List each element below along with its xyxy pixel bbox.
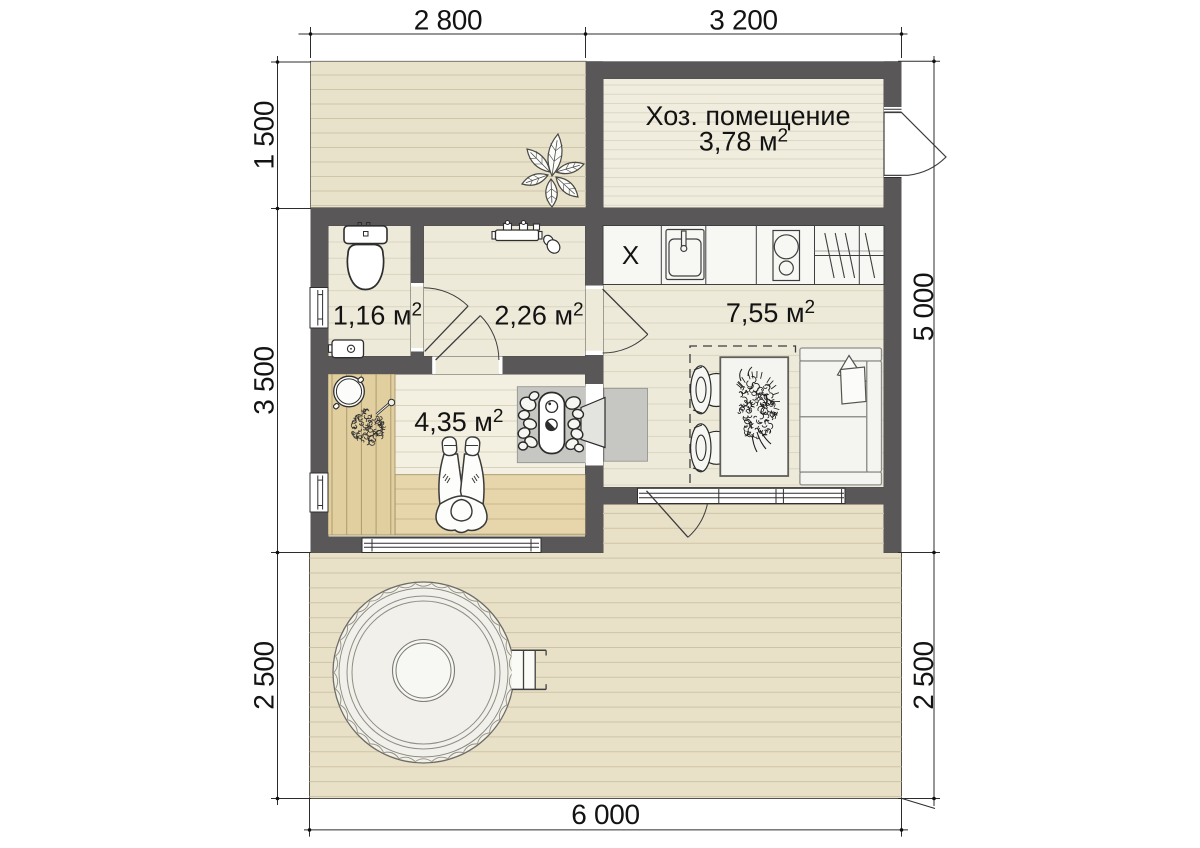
svg-text:5 000: 5 000	[908, 273, 939, 342]
svg-text:7,55 м2: 7,55 м2	[726, 297, 815, 328]
svg-text:1,16 м2: 1,16 м2	[333, 300, 422, 331]
svg-text:1 500: 1 500	[249, 101, 280, 170]
svg-text:4,35 м2: 4,35 м2	[414, 406, 503, 437]
svg-text:3 500: 3 500	[249, 346, 280, 415]
svg-text:2 500: 2 500	[249, 641, 280, 710]
svg-text:3,78 м2: 3,78 м2	[699, 126, 788, 157]
svg-text:2 500: 2 500	[908, 641, 939, 710]
svg-text:2 800: 2 800	[414, 5, 483, 36]
svg-text:3 200: 3 200	[709, 5, 778, 36]
svg-text:6 000: 6 000	[571, 799, 640, 830]
svg-text:X: X	[622, 240, 639, 270]
svg-text:2,26 м2: 2,26 м2	[494, 300, 583, 331]
